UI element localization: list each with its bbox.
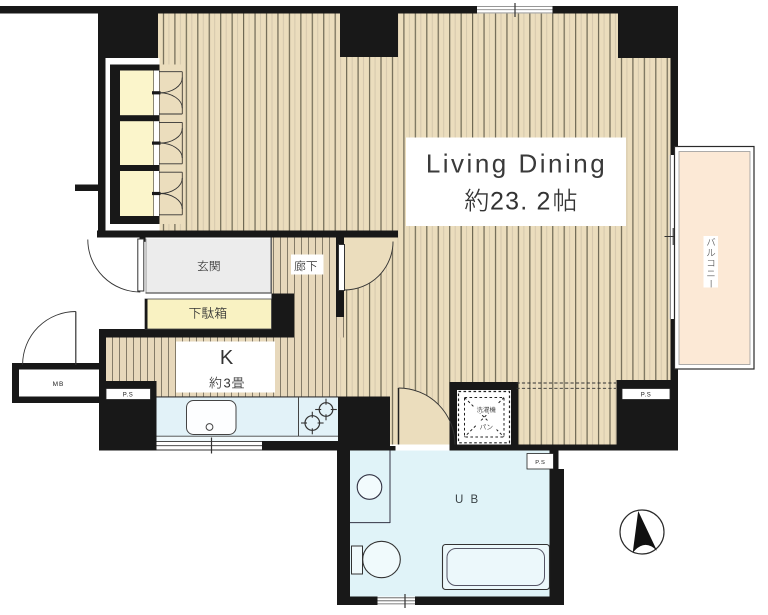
svg-text:K: K xyxy=(220,347,234,369)
svg-text:P.S: P.S xyxy=(123,393,133,399)
svg-text:Living Dining: Living Dining xyxy=(426,149,607,179)
svg-text:3: 3 xyxy=(224,375,231,390)
svg-text:P.S: P.S xyxy=(535,460,545,466)
svg-text:U B: U B xyxy=(455,494,480,506)
svg-text:MB: MB xyxy=(53,381,65,388)
svg-text:P.S: P.S xyxy=(641,393,651,399)
svg-text:23. 2: 23. 2 xyxy=(490,188,552,216)
